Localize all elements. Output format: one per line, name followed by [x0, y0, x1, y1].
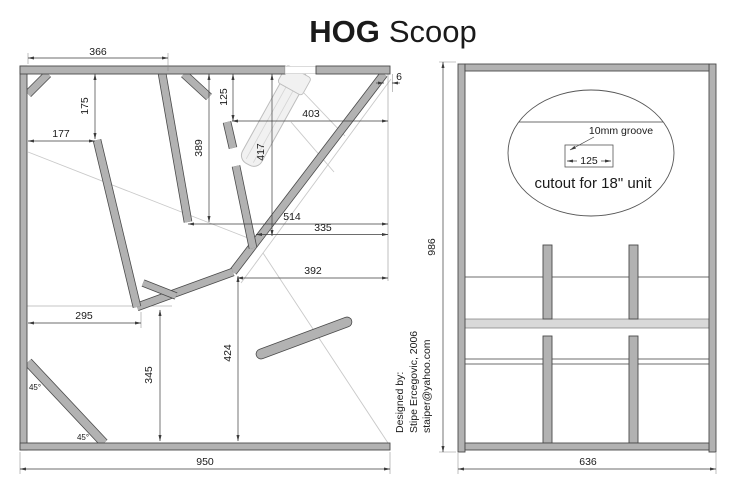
dim-392-label: 392 — [304, 265, 322, 277]
credit-line-1: Designed by: — [394, 372, 406, 433]
angle-label-top: 45° — [29, 383, 41, 392]
hog-scoop-plan-page: HOGScoop — [0, 0, 750, 503]
dim-636-label: 636 — [579, 456, 597, 468]
dim-175: 175 — [79, 74, 95, 139]
dim-295-label: 295 — [75, 310, 93, 322]
brace-bar-lower-right — [629, 336, 638, 443]
dim-125-label: 125 — [218, 88, 230, 106]
front-top-wall — [465, 64, 709, 71]
top-wall-slot — [285, 66, 316, 73]
technical-drawing: HOGScoop — [0, 0, 750, 503]
angle-label-bottom: 45° — [77, 433, 89, 442]
dim-295: 295 — [28, 310, 141, 328]
credit-line-3: staiper@yahoo.com — [421, 339, 433, 433]
dim-groove-label: 125 — [580, 155, 598, 167]
dim-986-label: 986 — [426, 238, 438, 256]
groove-note-label: 10mm groove — [589, 125, 653, 137]
side-section-view: 366 175 177 125 403 417 389 — [20, 46, 402, 474]
dim-950: 950 — [20, 452, 390, 474]
dim-6-label: 6 — [396, 71, 402, 83]
dim-177: 177 — [28, 128, 95, 141]
dim-366-label: 366 — [89, 46, 107, 58]
dim-125: 125 — [218, 74, 233, 121]
credit-line-2: Stipe Ercegovic, 2006 — [408, 331, 420, 433]
front-left-wall — [458, 64, 465, 452]
dim-950-label: 950 — [196, 456, 214, 468]
title-bold: HOG — [309, 14, 380, 49]
junction-brace — [143, 283, 176, 296]
corner-brace-top-left — [28, 74, 48, 94]
horn-path-line — [28, 152, 248, 238]
front-view: 10mm groove 125 cutout for 18" unit 986 … — [426, 62, 716, 474]
dim-345-label: 345 — [143, 366, 155, 384]
dim-424-label: 424 — [222, 344, 234, 362]
cutout-note-label: cutout for 18" unit — [534, 175, 652, 192]
brace-bar-lower-left — [543, 336, 552, 443]
left-wall — [20, 66, 27, 450]
top-wall-right — [316, 66, 390, 74]
brace-bar-upper-right — [629, 245, 638, 319]
inner-panel-top — [162, 73, 188, 222]
dim-514-label: 514 — [283, 211, 301, 223]
brace-top-mid — [184, 74, 209, 97]
driver-outline — [236, 63, 313, 171]
title-regular: Scoop — [389, 14, 477, 49]
dim-417: 417 — [255, 74, 272, 236]
dim-424: 424 — [222, 276, 238, 441]
dim-345: 345 — [143, 310, 160, 441]
front-bottom-wall — [465, 443, 709, 450]
inner-panel-left — [97, 140, 137, 307]
dim-389-label: 389 — [193, 139, 205, 157]
front-right-wall — [709, 64, 716, 452]
dim-514: 514 — [188, 211, 388, 224]
shelf-band — [465, 319, 709, 328]
credit-block: Designed by: Stipe Ercegovic, 2006 staip… — [394, 331, 433, 433]
top-wall — [20, 66, 285, 74]
reflector-bar — [261, 322, 347, 354]
page-title: HOGScoop — [309, 14, 477, 49]
dim-636: 636 — [458, 453, 716, 474]
dim-175-label: 175 — [79, 97, 91, 115]
driver-baffle-lower — [236, 166, 253, 248]
dim-403-label: 403 — [302, 108, 320, 120]
dim-335-label: 335 — [314, 222, 332, 234]
bottom-wall — [20, 443, 390, 450]
brace-bar-upper-left — [543, 245, 552, 319]
dim-417-label: 417 — [255, 143, 267, 161]
dim-177-label: 177 — [52, 128, 70, 140]
dim-392: 392 — [237, 265, 388, 278]
corner-brace-bottom-left — [28, 362, 104, 443]
internal-panels — [28, 73, 384, 443]
